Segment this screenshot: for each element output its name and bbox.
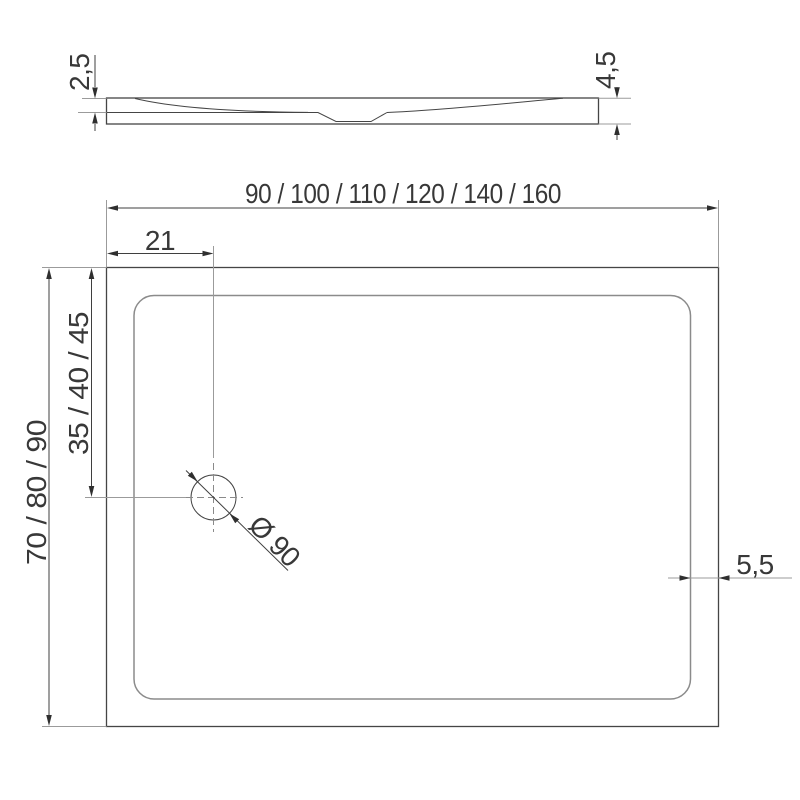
dim-rim-width: 5,5 bbox=[668, 549, 792, 581]
drain-diameter-label: Ø 90 bbox=[243, 509, 306, 572]
arrow-left-icon bbox=[107, 251, 118, 257]
side-view: 2,5 4,5 bbox=[64, 52, 631, 140]
rim-width-label: 5,5 bbox=[736, 549, 773, 580]
drain-offset-y-label: 35 / 40 / 45 bbox=[63, 312, 94, 455]
tray-profile-right-slope bbox=[387, 98, 563, 112]
arrow-left-icon bbox=[107, 205, 118, 211]
arrow-down-icon bbox=[89, 486, 95, 497]
arrow-up-icon bbox=[614, 124, 620, 135]
total-height-label: 4,5 bbox=[590, 52, 621, 89]
width-sizes-label: 90 / 100 / 110 / 120 / 140 / 160 bbox=[245, 178, 561, 209]
arrow-left-icon bbox=[719, 575, 730, 581]
dim-drain-offset-x: 21 bbox=[107, 225, 214, 458]
arrow-right-icon bbox=[203, 251, 214, 257]
drain-offset-x-label: 21 bbox=[145, 225, 175, 256]
arrow-up-icon bbox=[46, 268, 52, 279]
technical-drawing-canvas: 2,5 4,5 bbox=[0, 0, 800, 800]
rim-height-label: 2,5 bbox=[64, 54, 95, 91]
arrow-up-icon bbox=[92, 113, 98, 124]
arrow-up-icon bbox=[89, 268, 95, 279]
plan-view: 90 / 100 / 110 / 120 / 140 / 160 21 70 /… bbox=[21, 178, 792, 727]
tray-plan-inner-floor bbox=[134, 296, 691, 700]
arrow-right-icon bbox=[707, 205, 718, 211]
dim-width-sizes: 90 / 100 / 110 / 120 / 140 / 160 bbox=[107, 178, 719, 268]
tray-profile-floor-line bbox=[107, 113, 388, 122]
drawing-page: 2,5 4,5 bbox=[0, 0, 800, 800]
arrow-down-icon bbox=[46, 715, 52, 726]
arrow-right-icon bbox=[680, 575, 691, 581]
dim-rim-height: 2,5 bbox=[64, 54, 107, 131]
tray-profile-left-slope bbox=[135, 99, 308, 113]
dim-drain-diameter: Ø 90 bbox=[186, 471, 306, 573]
dim-drain-offset-y: 35 / 40 / 45 bbox=[63, 268, 186, 498]
dim-total-height: 4,5 bbox=[590, 52, 631, 140]
depth-sizes-label: 70 / 80 / 90 bbox=[21, 420, 52, 565]
